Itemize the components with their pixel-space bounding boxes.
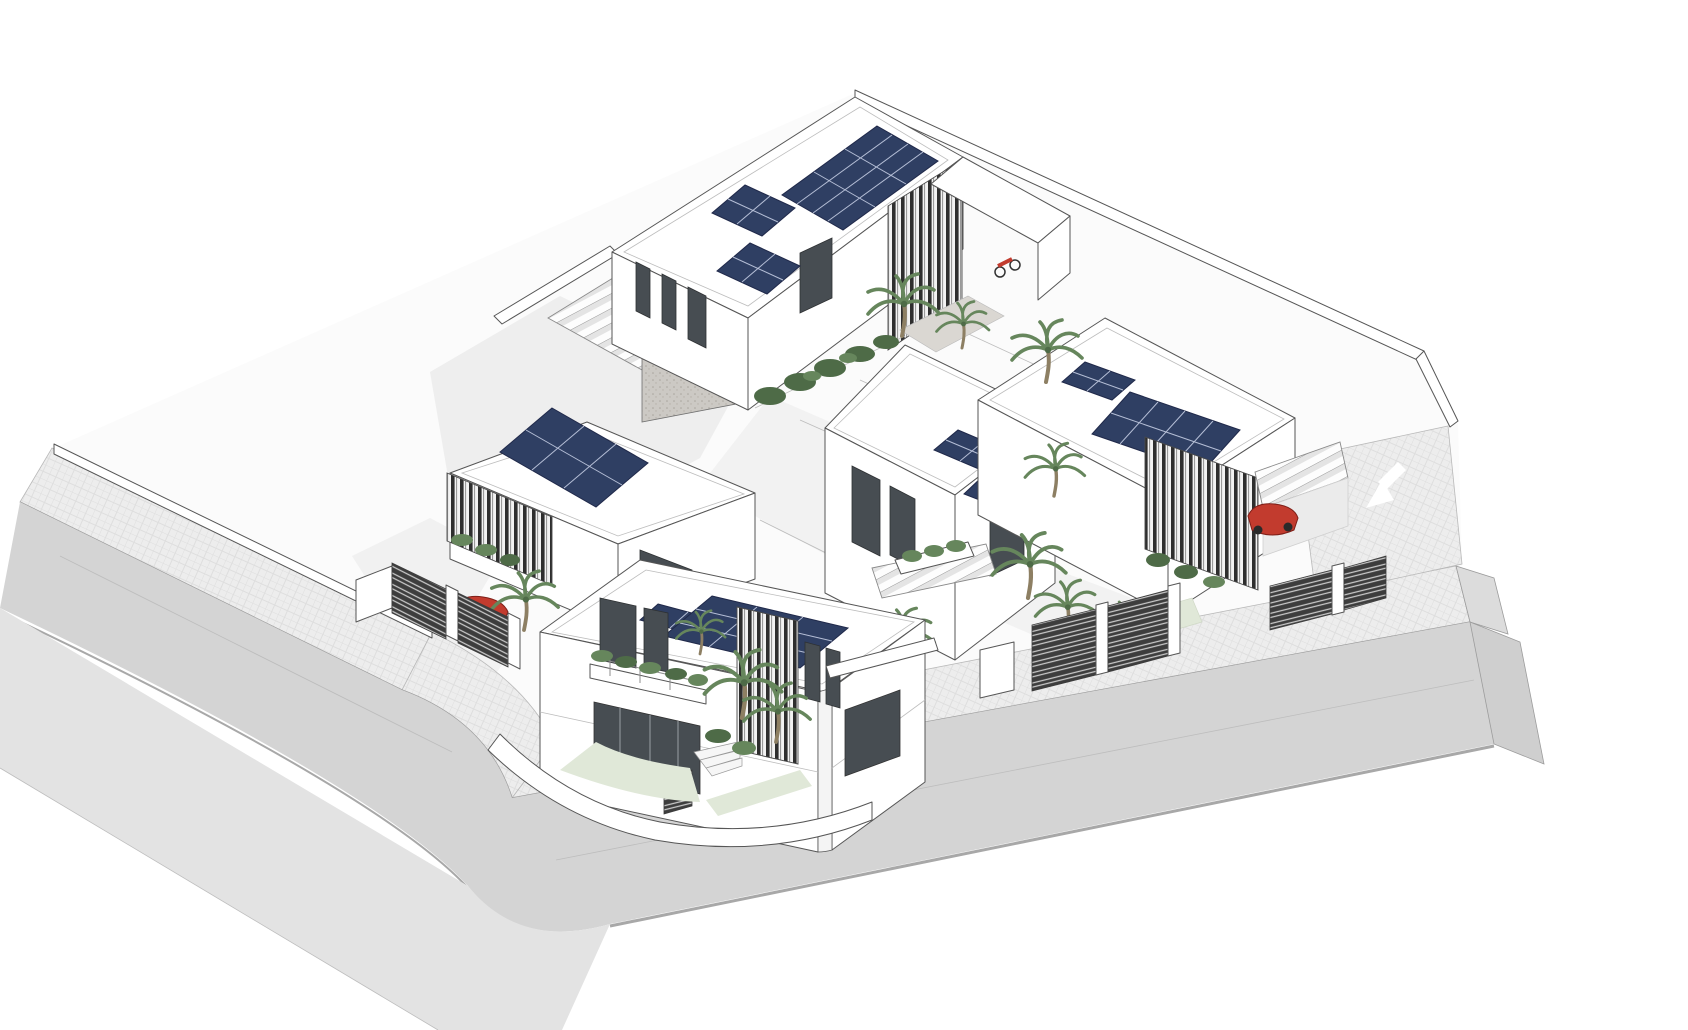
- fence-pillar: [1096, 602, 1108, 675]
- bush-light: [803, 371, 821, 381]
- fence-pillar: [508, 613, 520, 669]
- bush: [1146, 553, 1170, 567]
- fence-pillar: [1332, 563, 1344, 615]
- bush: [754, 387, 786, 405]
- bush: [688, 674, 708, 686]
- site-render: 3D axonometric site render of a resident…: [0, 0, 1688, 1030]
- bush: [1174, 565, 1198, 579]
- bush: [705, 729, 731, 743]
- bush: [475, 544, 497, 556]
- render-canvas: 3D axonometric site render of a resident…: [0, 0, 1688, 1030]
- bush: [451, 534, 473, 546]
- bush: [639, 662, 661, 674]
- bush: [591, 650, 613, 662]
- bush: [732, 741, 756, 755]
- wheel: [1284, 523, 1293, 532]
- bush: [1203, 576, 1225, 588]
- bush: [924, 545, 944, 557]
- wheel: [1254, 526, 1263, 535]
- bush: [873, 335, 899, 349]
- bush-light: [839, 353, 857, 363]
- utility-box: [980, 642, 1014, 698]
- bush: [665, 668, 687, 680]
- red-car-east: [1248, 504, 1298, 535]
- bush: [500, 554, 520, 566]
- bush: [902, 550, 922, 562]
- bush: [615, 656, 637, 668]
- bush: [946, 540, 966, 552]
- fence-pillar: [446, 585, 458, 641]
- fence-pillar: [1168, 583, 1180, 656]
